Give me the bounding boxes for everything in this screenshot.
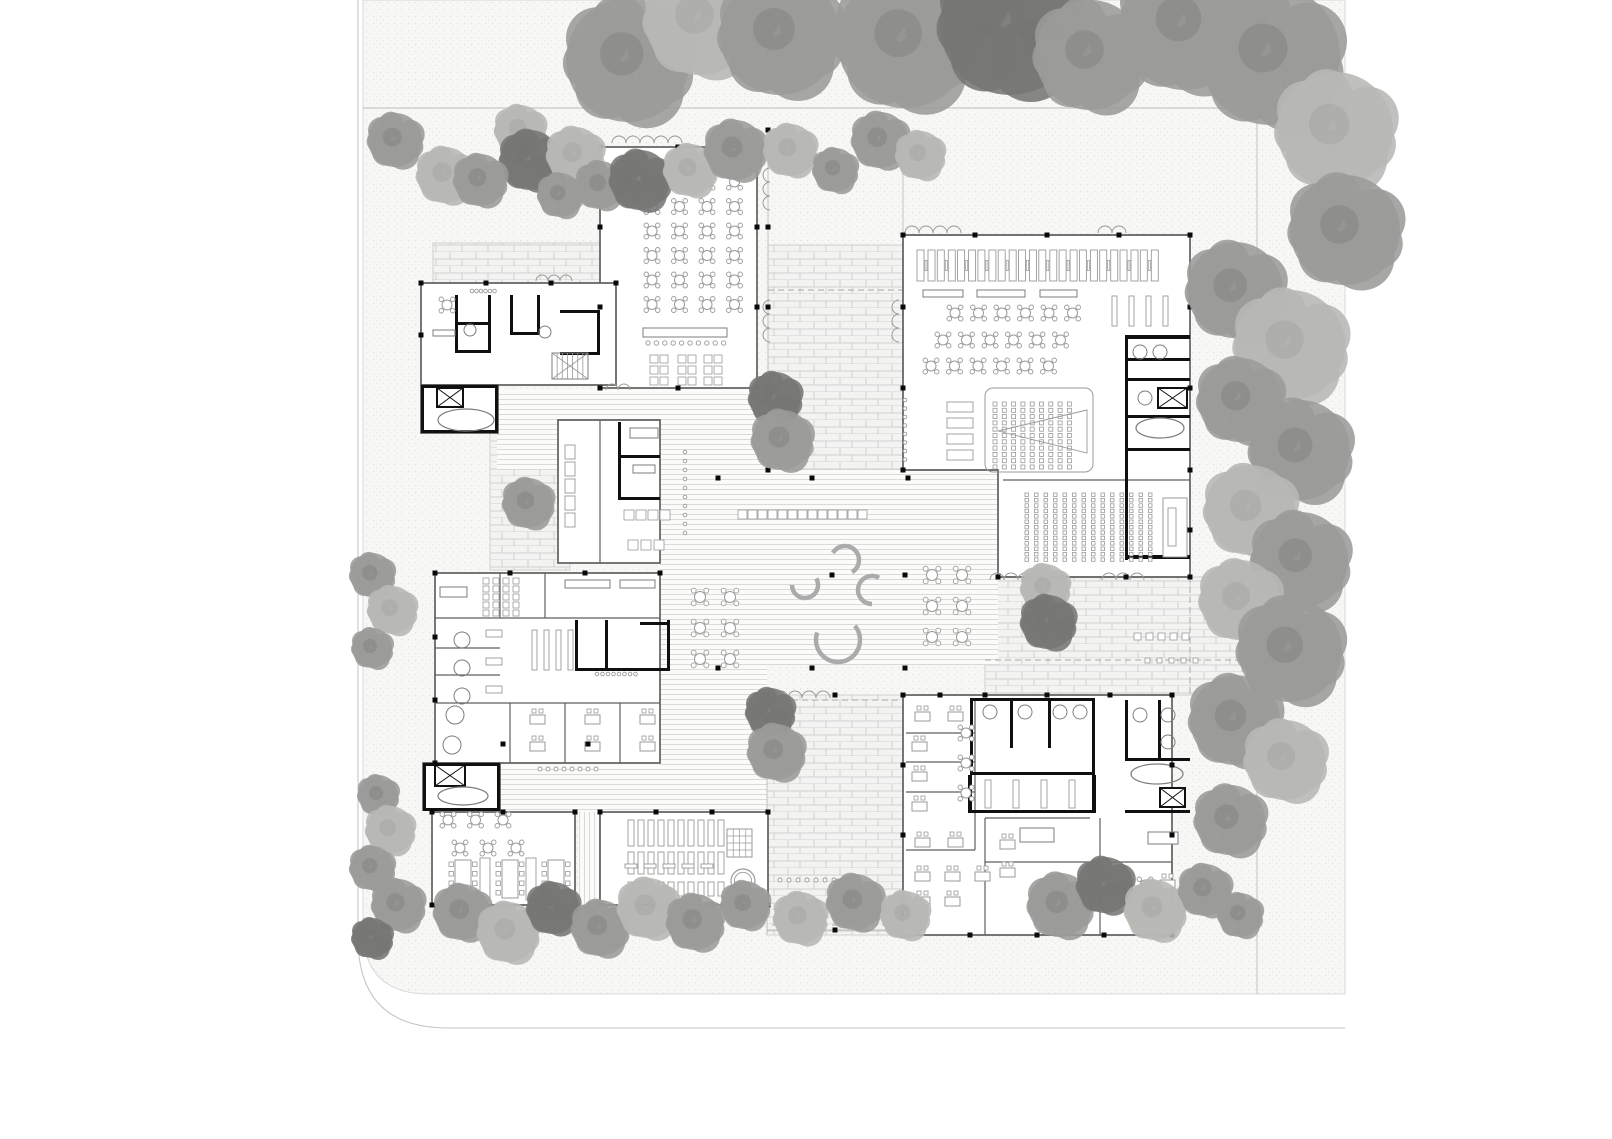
column-marker [833,693,838,698]
column-marker [766,810,771,815]
column-marker [1188,468,1193,473]
column-marker [658,571,663,576]
lift-nw [437,388,463,407]
wing-counter-a [440,587,467,597]
meeting-table-a [1020,828,1054,842]
column-marker [549,281,554,286]
games-table [727,829,752,857]
auditorium-seats [993,402,1071,469]
column-marker [586,742,591,747]
column-marker [430,810,435,815]
column-marker [433,571,438,576]
site-plan-page [0,0,1612,1139]
column-marker [901,763,906,768]
column-marker [573,810,578,815]
column-marker [996,575,1001,580]
column-marker [983,693,988,698]
servery-a [923,290,963,297]
column-marker [901,386,906,391]
column-marker [1188,575,1193,580]
column-marker [755,305,760,310]
floor-plan-canvas [0,0,1612,1139]
column-marker [766,225,771,230]
lift-se [1160,788,1185,807]
tree [1287,172,1405,290]
column-marker [419,333,424,338]
column-marker [1188,233,1193,238]
wing-counter-c [620,580,655,588]
column-marker [1117,233,1122,238]
column-marker [676,386,681,391]
column-marker [906,476,911,481]
column-marker [598,305,603,310]
column-marker [1188,528,1193,533]
servery-c [1040,290,1077,297]
column-marker [430,903,435,908]
column-marker [903,573,908,578]
column-marker [766,305,771,310]
podium [1163,498,1187,557]
column-marker [901,833,906,838]
column-marker [710,810,715,815]
column-marker [716,476,721,481]
column-marker [901,305,906,310]
column-marker [901,468,906,473]
column-marker [1045,693,1050,698]
column-marker [598,810,603,815]
column-marker [598,225,603,230]
column-marker [938,693,943,698]
nw-desk [433,330,455,336]
column-marker [433,698,438,703]
column-marker [901,233,906,238]
lift-west [435,765,465,786]
column-marker [1170,833,1175,838]
column-marker [501,810,506,815]
column-marker [810,666,815,671]
lift-ne [1158,388,1187,408]
kitchen-counter-a [630,428,658,438]
kitchen-stack [565,445,575,527]
column-marker [1188,386,1193,391]
column-marker [1170,693,1175,698]
column-marker [433,761,438,766]
deck-central-plaza [660,470,998,665]
deck-gallery-link [578,812,600,905]
column-marker [833,928,838,933]
column-marker [583,571,588,576]
column-marker [501,742,506,747]
column-marker [901,693,906,698]
column-marker [598,386,603,391]
deck-south-west [497,765,660,812]
column-marker [484,281,489,286]
buffet-counter [643,328,727,337]
column-marker [433,635,438,640]
column-marker [1124,575,1129,580]
column-marker [1045,233,1050,238]
column-marker [810,476,815,481]
column-marker [903,666,908,671]
column-marker [755,225,760,230]
column-marker [830,573,835,578]
column-marker [1035,933,1040,938]
kitchen-counter-b [633,465,655,473]
column-marker [614,281,619,286]
column-marker [1102,933,1107,938]
servery-b [977,290,1025,297]
column-marker [1170,763,1175,768]
column-marker [419,281,424,286]
column-marker [968,933,973,938]
column-marker [973,233,978,238]
column-marker [654,810,659,815]
column-marker [508,571,513,576]
kitchen-counter-grid-b [628,540,664,550]
column-marker [716,666,721,671]
column-marker [1108,693,1113,698]
planter-row-plaza [738,510,867,519]
wing-counter-b [565,580,610,588]
